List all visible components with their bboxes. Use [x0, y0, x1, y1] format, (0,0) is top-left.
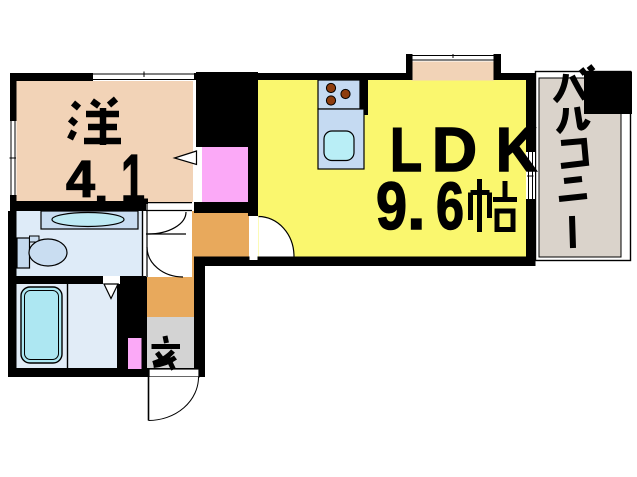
svg-text:1: 1 [121, 140, 145, 218]
svg-text:9: 9 [376, 169, 407, 244]
svg-text:4: 4 [66, 151, 95, 209]
svg-text:K: K [496, 116, 537, 185]
svg-text:6: 6 [436, 169, 464, 244]
svg-text:.: . [407, 169, 426, 244]
svg-text:.: . [94, 158, 108, 216]
